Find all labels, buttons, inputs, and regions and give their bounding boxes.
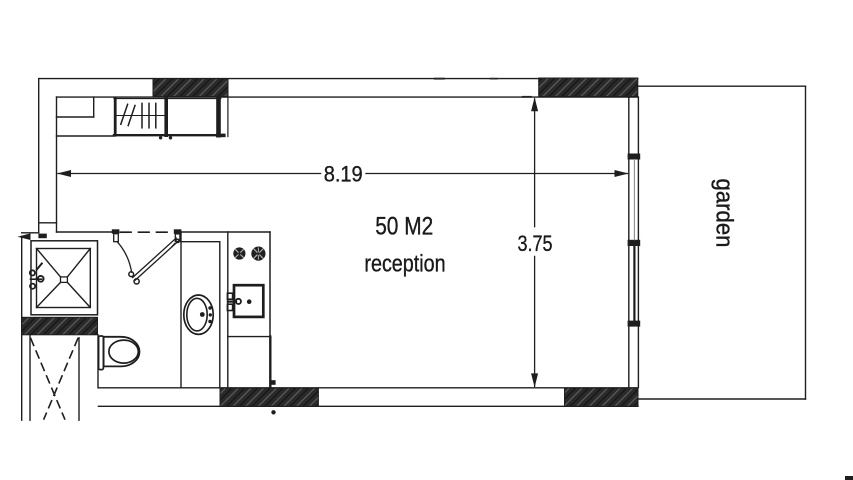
- svg-text:reception: reception: [364, 250, 445, 277]
- svg-text:8.19: 8.19: [324, 161, 363, 186]
- svg-text:garden: garden: [711, 179, 738, 248]
- svg-text:50 M2: 50 M2: [375, 213, 433, 241]
- svg-text:3.75: 3.75: [518, 231, 553, 256]
